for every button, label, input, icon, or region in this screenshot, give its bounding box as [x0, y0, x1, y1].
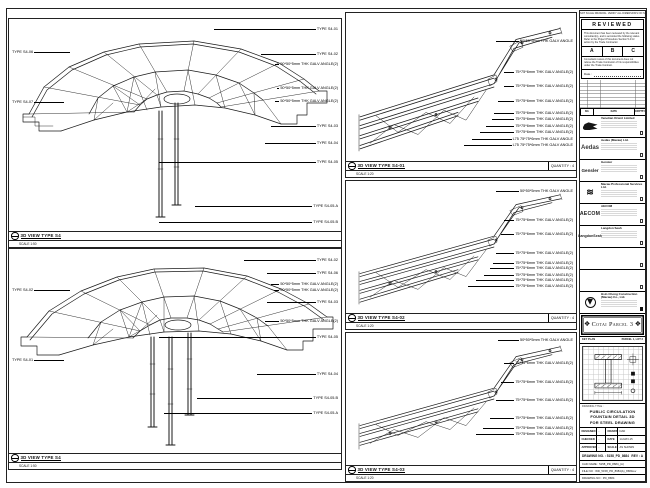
leader-label: TYPE S4-01: [12, 359, 64, 363]
project-name: Cotai Parcel 3: [590, 321, 634, 328]
revision-header-cell: DESCRIPTION: [634, 109, 642, 115]
quantity-label: QUANTITY : 4: [548, 162, 574, 170]
field-label: SCALE: [605, 444, 617, 451]
stamp-body-text: This document has been reviewed by the r…: [582, 30, 643, 46]
leader-label: 75*75*6mm THK GALV ANGLE(2): [504, 71, 573, 75]
drawing-area: 50*50*5mm THK GALV ANGLE 75*75*6mm THK G…: [346, 13, 576, 161]
key-plan-ref: PARCEL 1, LOT 2: [622, 338, 643, 341]
leader-label: 75*75*6mm THK GALV ANGLE(2): [496, 399, 573, 403]
view-title-bar: 3D VIEW TYPE S4-02 QUANTITY : 4: [346, 313, 576, 322]
consultant-list: Venetian Orient Limited Aedas Aedas (Mac…: [580, 116, 645, 314]
company-info: Venetian Orient Limited: [600, 116, 645, 137]
member-label: 75*75*6mm THK GALV ANGLE(2): [515, 112, 573, 116]
panel-3d-view-s4-top: TYPE S4-01 TYPE S4-02 50*50*5mm THK GALV…: [8, 18, 342, 248]
approval-field-row: APPROVED - SCALE AS SHOWN: [580, 443, 645, 451]
reviewed-stamp: REVIEWED This document has been reviewed…: [581, 19, 644, 79]
member-label: 75*75*6mm THK GALV ANGLE(2): [515, 399, 573, 403]
leader-line: [498, 340, 519, 341]
quantity-label: QUANTITY : 4: [548, 314, 574, 322]
leader-line: [501, 382, 514, 383]
leader-line: [476, 280, 514, 281]
leader-label: 75*75*6mm THK GALV ANGLE(2): [492, 118, 573, 122]
member-label: 75*75*6mm THK GALV ANGLE(2): [515, 267, 573, 271]
member-label: 75*75*6mm THK GALV ANGLE(2): [515, 279, 573, 283]
right-label-column: 50*50*5mm THK GALV ANGLE 75*75*6mm THK G…: [346, 181, 576, 313]
leader-line: [472, 139, 512, 140]
view-title: 3D VIEW TYPE S4-03: [358, 467, 405, 473]
field-label: APPROVED: [580, 444, 596, 451]
approval-field-row: CHECKED - DATE 14-MAY-15: [580, 435, 645, 443]
key-plan-header: KEY PLAN PARCEL 1, LOT 2: [580, 337, 645, 344]
leader-line: [34, 360, 64, 361]
stamp-note-text: Consultant review of this document does …: [582, 57, 643, 69]
company-name: Aedas (Macau) Ltd.: [601, 139, 644, 142]
company-address-fineprint: [601, 121, 637, 128]
drawing-area: 50*50*5mm THK GALV ANGLE 75*75*6mm THK G…: [346, 181, 576, 313]
scale-bar: SCALE 1:20: [346, 322, 576, 329]
leader-label: 75*75*6mm THK GALV ANGLE(2): [480, 131, 573, 135]
leader-line: [504, 86, 514, 87]
right-label-column: 50*50*5mm THK GALV ANGLE 75*75*6mm THK G…: [346, 333, 576, 465]
member-label: 75*75*6mm THK GALV ANGLE(2): [515, 417, 573, 421]
member-label: 75*75*6mm THK GALV ANGLE(2): [515, 125, 573, 129]
leader-line: [484, 275, 514, 276]
company-checkbox: [640, 197, 644, 201]
leader-line: [494, 113, 514, 114]
field-label: CHECKED: [580, 436, 596, 443]
company-address-fineprint: [601, 143, 637, 150]
member-label: 75*75*6mm THK GALV ANGLE(2): [515, 252, 573, 256]
member-label: 75*75*6mm THK GALV ANGLE(2): [515, 100, 573, 104]
company-info: Hsin Chong Construction (Macau) Co., Ltd…: [600, 292, 645, 313]
leader-line: [496, 253, 514, 254]
revision-tag: REV : A: [631, 454, 643, 458]
view-title: 3D VIEW TYPE S4: [21, 455, 61, 461]
company-logo-icon: Gensler: [580, 160, 600, 181]
detail-bubble-icon: [11, 232, 19, 240]
member-label: 75*75*6mm THK GALV ANGLE(2): [515, 427, 573, 431]
company-info: AECOM: [600, 204, 645, 225]
company-wordmark: Aedas: [581, 145, 599, 151]
leader-line: [34, 102, 64, 103]
member-label: TYPE S4-01: [12, 359, 33, 363]
panel-3d-view-s4-03: 50*50*5mm THK GALV ANGLE 75*75*6mm THK G…: [345, 332, 577, 482]
leader-label: 50*50*5mm THK GALV ANGLE: [498, 339, 573, 343]
ornament-icon: ❖: [635, 321, 641, 328]
member-label: 50*50*5mm THK GALV ANGLE: [520, 40, 573, 44]
company-logo-icon: [580, 270, 600, 291]
leader-label: 75*75*6mm THK GALV ANGLE(2): [501, 381, 573, 385]
company-address-fineprint: [601, 209, 637, 216]
leader-line: [492, 119, 514, 120]
scale-label: SCALE 1:20: [356, 476, 374, 480]
leader-label: L75 75*75*6mm THK GALV ANGLE: [464, 144, 573, 148]
field-value: AS SHOWN: [617, 444, 645, 451]
field-value: -: [596, 444, 605, 451]
view-title-bar: 3D VIEW TYPE S4-03 QUANTITY : 4: [346, 465, 576, 474]
drawing-area: TYPE S4-01 TYPE S4-02 50*50*5mm THK GALV…: [9, 19, 341, 231]
status-option-cell: A: [582, 47, 602, 56]
leader-label: 50*50*5mm THK GALV ANGLE: [496, 190, 573, 194]
revision-table: [580, 80, 645, 109]
left-label-column: TYPE S4-02 TYPE S4-01: [9, 249, 341, 453]
company-name: Macau Professional Services Ltd.: [601, 183, 644, 190]
scale-bar: SCALE 1:20: [346, 170, 576, 177]
member-label: 75*75*6mm THK GALV ANGLE(2): [515, 381, 573, 385]
company-logo-icon: [580, 116, 600, 137]
company-logo-icon: [580, 292, 600, 313]
member-label: 75*75*6mm THK GALV ANGLE(2): [515, 233, 573, 237]
leader-label: 75*75*6mm THK GALV ANGLE(2): [496, 252, 573, 256]
drawing-number-row: DRAWING NO. : 5158_PD_8684 REV : A: [580, 451, 645, 460]
key-plan-label: KEY PLAN: [582, 338, 595, 341]
scale-bar: SCALE 1:50: [9, 240, 341, 247]
company-address-fineprint: [601, 190, 637, 197]
file-number-row: FILE NO : WD_5158_PD_8684(A)_8684rev: [580, 467, 645, 474]
detail-bubble-icon: [348, 314, 356, 322]
drawing-title-line: FOUNTAIN DETAIL 3D: [582, 414, 643, 419]
company-logo-icon: Aedas: [580, 138, 600, 159]
leader-label: L75 75*75*6mm THK GALV ANGLE: [472, 138, 573, 142]
member-label: TYPE S4-06: [12, 51, 33, 55]
member-label: TYPE S4-07: [12, 101, 33, 105]
leader-label: 75*75*6mm THK GALV ANGLE(2): [504, 219, 573, 223]
leader-line: [498, 101, 514, 102]
company-logo-icon: LangdonSeah: [580, 226, 600, 247]
leader-label: 50*50*5mm THK GALV ANGLE: [496, 40, 573, 44]
company-row: Hsin Chong Construction (Macau) Co., Ltd…: [580, 292, 645, 314]
company-info: [600, 248, 645, 269]
field-value: 14-MAY-15: [617, 436, 645, 443]
field-label: DESIGNED: [580, 428, 596, 435]
panel-3d-view-s4-02: 50*50*5mm THK GALV ANGLE 75*75*6mm THK G…: [345, 180, 577, 330]
project-banner: ❖ Cotai Parcel 3 ❖: [581, 315, 644, 335]
title-block: DO NOT SCALE DRAWING. VERIFY ALL DIMENSI…: [579, 10, 646, 482]
company-checkbox: [640, 307, 644, 311]
leader-line: [468, 286, 514, 287]
company-wordmark: AECOM: [580, 211, 600, 217]
status-option-cell: B: [602, 47, 623, 56]
left-label-column: TYPE S4-06 TYPE S4-07: [9, 19, 341, 231]
company-address-fineprint: [601, 231, 637, 238]
company-row: Venetian Orient Limited: [580, 116, 645, 138]
member-label: 75*75*6mm THK GALV ANGLE(2): [515, 433, 573, 437]
status-options-row: A B C: [582, 46, 643, 57]
leader-label: 75*75*6mm THK GALV ANGLE(2): [498, 100, 573, 104]
scale-label: SCALE 1:20: [356, 172, 374, 176]
company-row: [580, 270, 645, 292]
date-label: Date :: [584, 72, 592, 76]
company-row: [580, 248, 645, 270]
company-name: Venetian Orient Limited: [601, 117, 644, 120]
member-label: 75*75*6mm THK GALV ANGLE(2): [515, 219, 573, 223]
leader-label: 75*75*6mm THK GALV ANGLE(2): [490, 267, 573, 271]
quantity-label: QUANTITY : 4: [548, 466, 574, 474]
company-checkbox: [640, 285, 644, 289]
leader-line: [496, 400, 514, 401]
cad-name-row: CAD NAME : 5158_PD_8684_(A): [580, 460, 645, 467]
sheet-note: DO NOT SCALE DRAWING. VERIFY ALL DIMENSI…: [580, 11, 645, 18]
member-label: L75 75*75*6mm THK GALV ANGLE: [513, 144, 573, 148]
view-title-bar: 3D VIEW TYPE S4: [9, 231, 341, 240]
view-title-bar: 3D VIEW TYPE S4: [9, 453, 341, 462]
revision-table-header: NO. DATE DESCRIPTION BY: [580, 109, 645, 116]
member-label: 75*75*6mm THK GALV ANGLE(2): [515, 85, 573, 89]
company-checkbox: [640, 219, 644, 223]
leader-line: [493, 263, 514, 264]
leader-label: 75*75*6mm THK GALV ANGLE(2): [483, 427, 573, 431]
detail-bubble-icon: [11, 454, 19, 462]
leader-label: 75*75*6mm THK GALV ANGLE(2): [504, 362, 573, 366]
leader-label: 75*75*6mm THK GALV ANGLE(2): [486, 125, 573, 129]
member-label: 75*75*6mm THK GALV ANGLE(2): [515, 71, 573, 75]
company-wordmark: Gensler: [581, 168, 598, 173]
member-label: 50*50*5mm THK GALV ANGLE: [520, 190, 573, 194]
detail-bubble-icon: [348, 162, 356, 170]
drawing-title-line: FOR STEEL DRAWING: [582, 420, 643, 425]
company-address-fineprint: [601, 165, 637, 172]
leader-label: TYPE S4-07: [12, 101, 64, 105]
revision-header-cell: BY: [642, 109, 645, 115]
sheet-number-row: DRAWING NO : PD_8684: [580, 474, 645, 481]
revision-header-cell: DATE: [593, 109, 634, 115]
company-row: LangdonSeah Langdon Seah: [580, 226, 645, 248]
company-info: Gensler: [600, 160, 645, 181]
company-logo-icon: [580, 182, 600, 203]
panel-3d-view-s4-01: 50*50*5mm THK GALV ANGLE 75*75*6mm THK G…: [345, 12, 577, 178]
right-label-column: 50*50*5mm THK GALV ANGLE 75*75*6mm THK G…: [346, 13, 576, 161]
key-plan-drawing: [582, 346, 643, 401]
leader-label: TYPE S4-02: [12, 289, 70, 293]
drawing-area: 50*50*5mm THK GALV ANGLE 75*75*6mm THK G…: [346, 333, 576, 465]
approval-fields: DESIGNED - DRAWN DAD CHECKED - DATE 14-M…: [580, 427, 645, 451]
status-option-cell: C: [622, 47, 643, 56]
leader-line: [496, 191, 519, 192]
scale-label: SCALE 1:50: [19, 242, 37, 246]
company-checkbox: [640, 153, 644, 157]
drawing-area: TYPE S4-02 TYPE S4-06 50*50*5mm THK GALV…: [9, 249, 341, 453]
drawing-title-lines: PUBLIC CIRCULATION FOUNTAIN DETAIL 3D FO…: [580, 408, 645, 427]
leader-line: [464, 145, 512, 146]
drawing-sheet: TYPE S4-01 TYPE S4-02 50*50*5mm THK GALV…: [0, 0, 650, 488]
member-label: TYPE S4-02: [12, 289, 33, 293]
leader-line: [483, 428, 514, 429]
view-title: 3D VIEW TYPE S4-02: [358, 315, 405, 321]
leader-line: [504, 363, 514, 364]
company-row: Aedas Aedas (Macau) Ltd.: [580, 138, 645, 160]
company-row: Gensler Gensler: [580, 160, 645, 182]
leader-label: 75*75*6mm THK GALV ANGLE(2): [468, 285, 573, 289]
leader-line: [480, 132, 514, 133]
company-name: Gensler: [601, 161, 644, 164]
leader-label: 75*75*6mm THK GALV ANGLE(2): [476, 433, 573, 437]
company-wordmark: LangdonSeah: [578, 234, 602, 238]
leader-line: [490, 418, 514, 419]
company-checkbox: [640, 131, 644, 135]
company-checkbox: [640, 263, 644, 267]
field-value: -: [596, 436, 605, 443]
leader-line: [504, 72, 514, 73]
company-logo-icon: AECOM: [580, 204, 600, 225]
leader-line: [34, 290, 70, 291]
member-label: 75*75*6mm THK GALV ANGLE(2): [515, 285, 573, 289]
company-name: Hsin Chong Construction (Macau) Co., Ltd…: [601, 293, 644, 300]
detail-bubble-icon: [348, 466, 356, 474]
leader-line: [504, 220, 514, 221]
company-info: [600, 270, 645, 291]
leader-line: [501, 234, 514, 235]
company-name: Langdon Seah: [601, 227, 644, 230]
leader-line: [496, 41, 519, 42]
member-label: 75*75*6mm THK GALV ANGLE(2): [515, 118, 573, 122]
company-info: Aedas (Macau) Ltd.: [600, 138, 645, 159]
company-info: Langdon Seah: [600, 226, 645, 247]
company-logo-icon: [580, 248, 600, 269]
member-label: 75*75*6mm THK GALV ANGLE(2): [515, 131, 573, 135]
company-info: Macau Professional Services Ltd.: [600, 182, 645, 203]
leader-line: [476, 434, 514, 435]
member-label: L75 75*75*6mm THK GALV ANGLE: [513, 138, 573, 142]
view-title-bar: 3D VIEW TYPE S4-01 QUANTITY : 4: [346, 161, 576, 170]
field-label: DRAWN: [605, 428, 617, 435]
field-value: -: [596, 428, 605, 435]
revision-header-cell: NO.: [580, 109, 593, 115]
field-value: DAD: [617, 428, 645, 435]
leader-label: 75*75*6mm THK GALV ANGLE(2): [504, 85, 573, 89]
company-address-fineprint: [601, 300, 637, 307]
company-checkbox: [640, 175, 644, 179]
scale-label: SCALE 1:50: [19, 464, 37, 468]
scale-bar: SCALE 1:20: [346, 474, 576, 481]
company-row: AECOM AECOM: [580, 204, 645, 226]
scale-bar: SCALE 1:50: [9, 462, 341, 469]
leader-line: [34, 52, 70, 53]
leader-label: 75*75*6mm THK GALV ANGLE(2): [490, 417, 573, 421]
leader-label: 75*75*6mm THK GALV ANGLE(2): [476, 279, 573, 283]
beam-section-icon: [583, 347, 642, 400]
leader-label: 75*75*6mm THK GALV ANGLE(2): [494, 112, 573, 116]
leader-label: TYPE S4-06: [12, 51, 70, 55]
company-name: AECOM: [601, 205, 644, 208]
drawing-number: DRAWING NO. : 5158_PD_8684: [582, 454, 629, 458]
date-line: Date :: [582, 69, 643, 78]
leader-label: 75*75*6mm THK GALV ANGLE(2): [501, 233, 573, 237]
stamp-title: REVIEWED: [582, 20, 643, 30]
view-title: 3D VIEW TYPE S4: [21, 233, 61, 239]
leader-line: [486, 126, 514, 127]
member-label: 50*50*5mm THK GALV ANGLE: [520, 339, 573, 343]
drawing-title-section: DRAWING TITLE : PUBLIC CIRCULATION FOUNT…: [580, 403, 645, 427]
approval-field-row: DESIGNED - DRAWN DAD: [580, 427, 645, 435]
leader-line: [490, 268, 514, 269]
member-label: 75*75*6mm THK GALV ANGLE(2): [515, 362, 573, 366]
company-row: Macau Professional Services Ltd.: [580, 182, 645, 204]
view-title: 3D VIEW TYPE S4-01: [358, 163, 405, 169]
company-checkbox: [640, 241, 644, 245]
scale-label: SCALE 1:20: [356, 324, 374, 328]
panel-3d-view-s4-bottom: TYPE S4-02 TYPE S4-06 50*50*5mm THK GALV…: [8, 248, 342, 470]
field-label: DATE: [605, 436, 617, 443]
key-plan: KEY PLAN PARCEL 1, LOT 2: [580, 336, 645, 403]
